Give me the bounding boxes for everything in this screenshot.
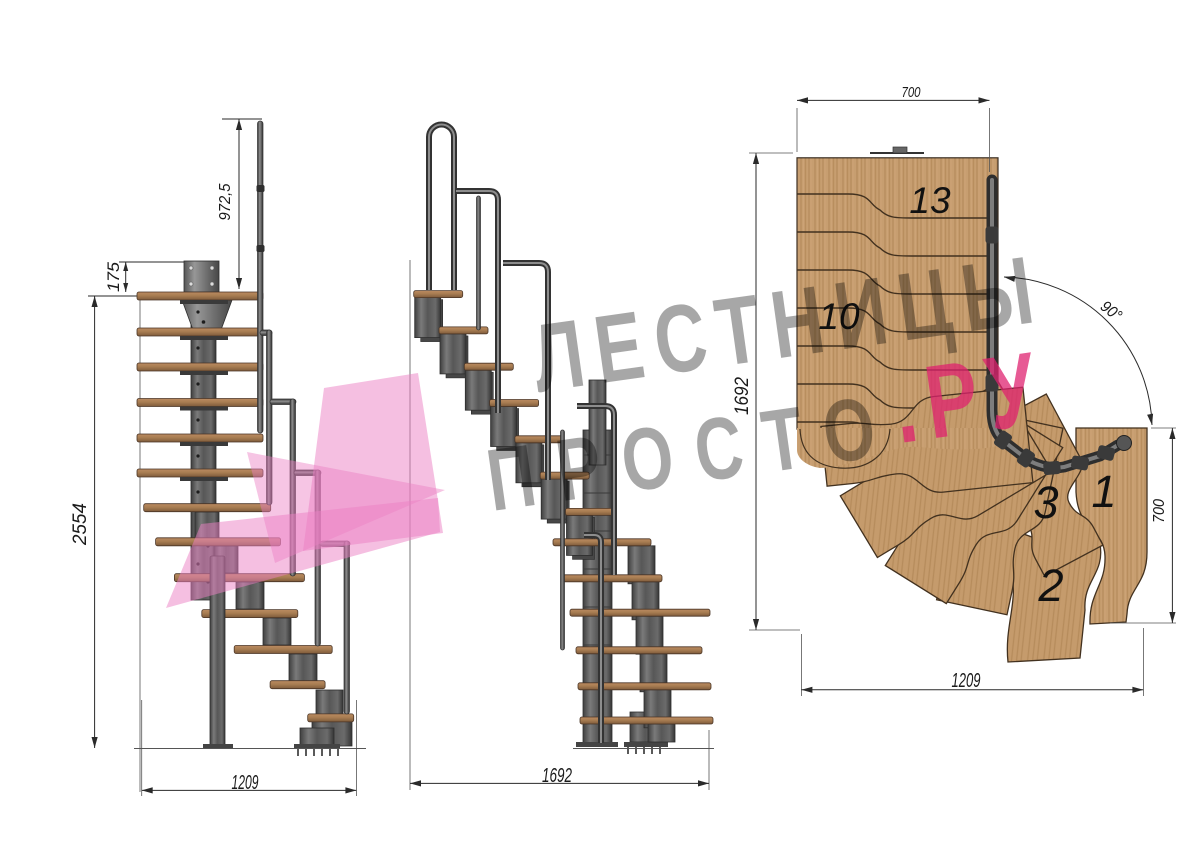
svg-text:1692: 1692: [542, 765, 572, 787]
svg-text:1: 1: [1091, 466, 1116, 517]
svg-text:.РУ: .РУ: [886, 330, 1053, 466]
svg-text:2554: 2554: [70, 503, 91, 546]
svg-text:3: 3: [1033, 477, 1058, 528]
svg-text:175: 175: [104, 261, 123, 292]
svg-text:1209: 1209: [232, 772, 259, 794]
svg-text:700: 700: [1151, 499, 1168, 523]
svg-text:2: 2: [1037, 560, 1063, 611]
svg-text:1209: 1209: [952, 670, 981, 692]
svg-text:700: 700: [902, 84, 921, 101]
svg-text:972,5: 972,5: [217, 183, 234, 220]
svg-text:13: 13: [909, 180, 951, 221]
